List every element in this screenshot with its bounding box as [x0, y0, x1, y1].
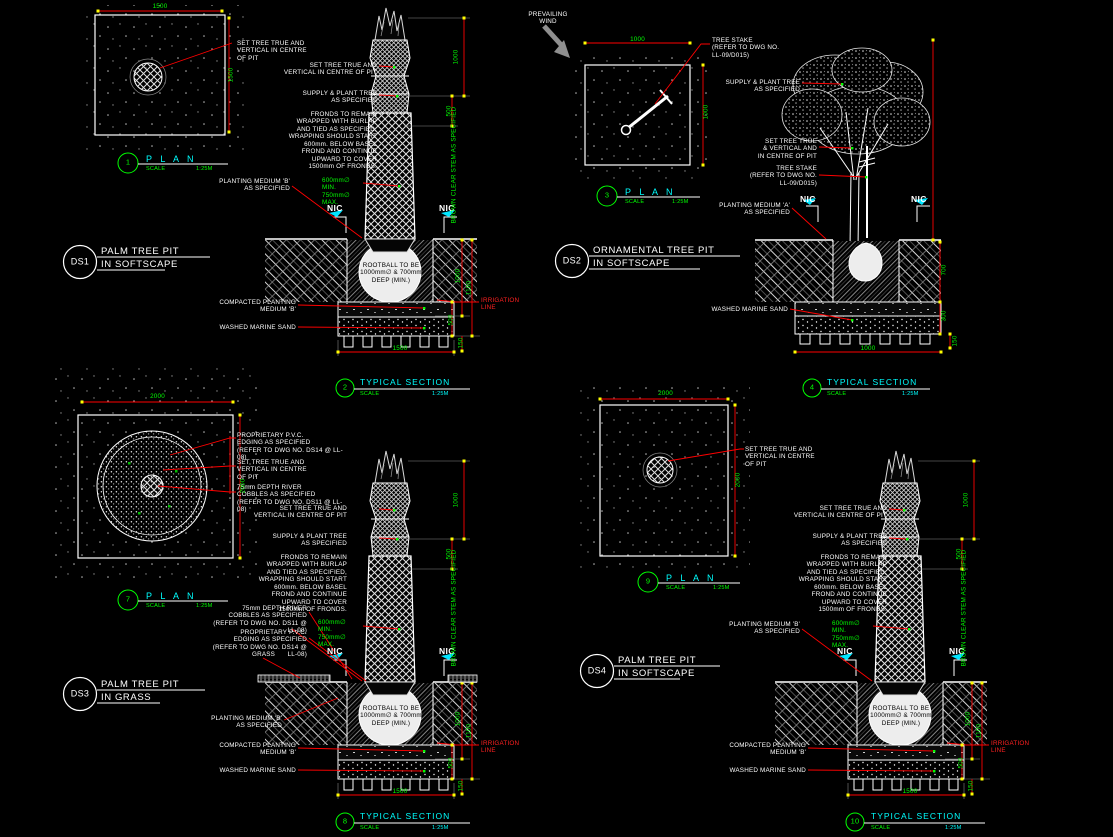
ds3-section-set-tree-note: SET TREE TRUE AND VERTICAL IN CENTRE OF … — [247, 505, 347, 520]
ds2-section-tree-stake-note: TREE STAKE (REFER TO DWG NO. LL-09/D015) — [717, 165, 817, 187]
ds4-supply-note: SUPPLY & PLANT TREE AS SPECIFIED — [787, 533, 887, 548]
ds1-plan-set-tree-note: SET TREE TRUE AND VERTICAL IN CENTRE OF … — [237, 40, 327, 62]
ds1-plan-scale-word: SCALE — [146, 166, 165, 173]
ds3-grass-note: GRASS — [252, 651, 275, 658]
ds4-section-heading: TYPICAL SECTION — [871, 811, 961, 821]
ds1-dim-500: 500 — [445, 105, 452, 116]
ds2-dim-depth: 700 — [940, 264, 947, 275]
ds2-plan-drawing — [544, 26, 710, 180]
ds3-dim-base: 500 — [447, 757, 454, 768]
ds3-washed-sand-note: WASHED MARINE SAND — [196, 767, 296, 774]
ds4-plan-scale-value: 1:25M — [713, 585, 730, 592]
ds3-section-scale-value: 1:25M — [432, 825, 449, 832]
ds4-title-line1: PALM TREE PIT — [618, 655, 696, 666]
ds4-stem-note: BROWN CLEAR STEM AS SPECIFIED — [960, 550, 967, 667]
ds2-prevailing-wind-note: PREVAILING WIND — [526, 11, 570, 26]
ds4-nic-left: NIC — [837, 646, 853, 656]
ds2-nic-right: NIC — [911, 194, 927, 204]
ds2-set-tree-note: SET TREE TRUE & VERTICAL AND IN CENTRE O… — [717, 138, 817, 160]
ds2-dim-base: 300 — [940, 310, 947, 321]
ds4-dim-base: 500 — [957, 757, 964, 768]
ds3-plan-scale-value: 1:25M — [196, 603, 213, 610]
ds1-dim-width: 1500 — [365, 345, 435, 352]
ds1-dim-1000: 1000 — [452, 50, 459, 65]
ds4-dim-500: 500 — [955, 548, 962, 559]
ds4-dim-pit: 1000 — [964, 712, 971, 727]
ds3-section-heading: TYPICAL SECTION — [360, 811, 450, 821]
drawing-linework — [0, 0, 1113, 837]
ds1-stem-note: BROWN CLEAR STEM AS SPECIFIED — [450, 107, 457, 224]
ds1-washed-sand-note: WASHED MARINE SAND — [196, 324, 296, 331]
ds3-dim-pit: 1000 — [454, 712, 461, 727]
ds1-plan-dim-height: 1500 — [227, 68, 234, 83]
ds3-planting-medium-note: PLANTING MEDIUM 'B' AS SPECIFIED — [182, 715, 282, 730]
ds4-section-number: 10 — [851, 818, 860, 827]
ds4-section-scale-value: 1:25M — [945, 825, 962, 832]
ds4-rootball-note: ROOTBALL TO BE 1000mm∅ & 700mm DEEP (MIN… — [869, 705, 933, 727]
ds1-supply-note: SUPPLY & PLANT TREE AS SPECIFIED — [277, 90, 377, 105]
ds4-plan-scale-word: SCALE — [666, 585, 685, 592]
ds4-section-set-tree-note: SET TREE TRUE AND VERTICAL IN CENTRE OF … — [787, 505, 887, 520]
ds3-plan-dim-height: 2000 — [239, 479, 246, 494]
ds3-rootball-note: ROOTBALL TO BE 1000mm∅ & 700mm DEEP (MIN… — [359, 705, 423, 727]
ds3-plan-heading: P L A N — [146, 591, 197, 602]
ds3-plan-scale-word: SCALE — [146, 603, 165, 610]
ds1-rootball-note: ROOTBALL TO BE 1000mm∅ & 700mm DEEP (MIN… — [359, 262, 423, 284]
ds4-detail-id: DS4 — [588, 666, 606, 677]
ds3-section-scale-word: SCALE — [360, 825, 379, 832]
ds1-section-set-tree-note: SET TREE TRUE AND VERTICAL IN CENTRE OF … — [277, 62, 377, 77]
ds3-plan-dim-width: 2000 — [120, 393, 195, 400]
ds2-plan-dim-height: 1000 — [702, 105, 709, 120]
ds3-plan-set-tree-note: SET TREE TRUE AND VERTICAL IN CENTRE OF … — [237, 459, 327, 481]
ds2-plan-scale-value: 1:25M — [672, 199, 689, 206]
ds1-title-line1: PALM TREE PIT — [101, 246, 179, 257]
ds2-section-heading: TYPICAL SECTION — [827, 377, 917, 387]
ds2-title-line2: IN SOFTSCAPE — [593, 258, 670, 269]
ds4-washed-sand-note: WASHED MARINE SAND — [706, 767, 806, 774]
ds1-irrigation-note: IRRIGATION LINE — [481, 297, 519, 312]
ds2-supply-note: SUPPLY & PLANT TREE AS SPECIFIED — [700, 79, 800, 94]
ds2-plan-heading: P L A N — [625, 187, 676, 198]
ds2-plan-scale-word: SCALE — [625, 199, 644, 206]
ds4-fronds-note: FRONDS TO REMAIN WRAPPED WITH BURLAP AND… — [787, 554, 887, 613]
ds3-pvc-edging-plan-note: PROPRIETARY P.V.C. EDGING AS SPECIFIED (… — [237, 432, 352, 462]
ds3-supply-note: SUPPLY & PLANT TREE AS SPECIFIED — [247, 533, 347, 548]
ds3-dim-500: 500 — [445, 548, 452, 559]
ds4-plan-heading: P L A N — [666, 573, 717, 584]
ds1-section-scale-value: 1:25M — [432, 391, 449, 398]
ds4-dim-sub: 150 — [967, 780, 974, 791]
ds1-plan-number: 1 — [126, 159, 130, 168]
ds1-nic-left: NIC — [327, 203, 343, 213]
ds1-fronds-note: FRONDS TO REMAIN WRAPPED WITH BURLAP AND… — [277, 111, 377, 170]
ds1-compacted-note: COMPACTED PLANTING MEDIUM 'B' — [196, 299, 296, 314]
ds2-plan-tree-stake-note: TREE STAKE (REFER TO DWG NO. LL-09/D015) — [712, 37, 797, 59]
ds4-planting-medium-note: PLANTING MEDIUM 'B' AS SPECIFIED — [700, 621, 800, 636]
ds1-plan-scale-value: 1:25M — [196, 166, 213, 173]
ds4-dim-1000: 1000 — [962, 493, 969, 508]
ds1-title-line2: IN SOFTSCAPE — [101, 259, 178, 270]
ds3-irrigation-note: IRRIGATION LINE — [481, 740, 519, 755]
cad-drawing-sheet: SET TREE TRUE AND VERTICAL IN CENTRE OF … — [0, 0, 1113, 837]
ds4-compacted-note: COMPACTED PLANTING MEDIUM 'B' — [706, 742, 806, 757]
ds4-section-scale-word: SCALE — [871, 825, 890, 832]
ds1-dim-pit: 1000 — [454, 269, 461, 284]
ds2-title-line1: ORNAMENTAL TREE PIT — [593, 245, 715, 256]
ds2-washed-sand-note: WASHED MARINE SAND — [688, 306, 788, 313]
ds4-plan-dim-width: 2000 — [628, 390, 703, 397]
ds3-compacted-note: COMPACTED PLANTING MEDIUM 'B' — [196, 742, 296, 757]
ds4-plan-drawing — [580, 385, 750, 570]
ds1-dim-base: 500 — [447, 314, 454, 325]
ds3-detail-id: DS3 — [71, 689, 89, 700]
ds4-plan-number: 9 — [646, 578, 650, 587]
ds3-dim-1000: 1000 — [452, 493, 459, 508]
ds2-section-number: 4 — [810, 384, 814, 393]
ds1-section-number: 2 — [343, 384, 347, 393]
ds3-stem-note: BROWN CLEAR STEM AS SPECIFIED — [450, 550, 457, 667]
ds2-plan-dim-width: 1000 — [600, 36, 675, 43]
ds3-dim-pit2: 1100 — [465, 724, 472, 738]
ds1-section-scale-word: SCALE — [360, 391, 379, 398]
ds2-plan-number: 3 — [605, 192, 609, 201]
ds1-detail-id: DS1 — [71, 257, 89, 268]
ds3-dim-width: 1500 — [365, 788, 435, 795]
prevailing-wind-arrow-icon — [544, 26, 570, 58]
ds3-title-line2: IN GRASS — [101, 692, 151, 703]
ds1-dim-pit2: 1100 — [465, 281, 472, 295]
ds2-dim-sub: 150 — [951, 335, 958, 346]
ds4-section-drawing — [775, 451, 990, 799]
ds2-section-scale-word: SCALE — [827, 391, 846, 398]
ds1-plan-dim-width: 1500 — [125, 3, 195, 10]
ds3-title-line1: PALM TREE PIT — [101, 679, 179, 690]
ds1-plan-drawing — [85, 5, 245, 150]
ds4-title-line2: IN SOFTSCAPE — [618, 668, 695, 679]
ds2-section-scale-value: 1:25M — [902, 391, 919, 398]
ds3-section-number: 8 — [343, 818, 347, 827]
ds2-detail-id: DS2 — [563, 256, 581, 267]
ds4-dim-width: 1500 — [875, 788, 945, 795]
ds2-planting-medium-note: PLANTING MEDIUM 'A' AS SPECIFIED — [690, 202, 790, 217]
ds1-plan-heading: P L A N — [146, 154, 197, 165]
ds4-plan-dim-height: 2000 — [734, 473, 741, 488]
ds1-planting-medium-note: PLANTING MEDIUM 'B' AS SPECIFIED — [190, 178, 290, 193]
ds4-irrigation-note: IRRIGATION LINE — [991, 740, 1029, 755]
ds3-rootball-diameter-note: 600mm∅ MIN. 750mm∅ MAX. — [318, 619, 360, 649]
ds3-plan-number: 7 — [126, 596, 130, 605]
ds4-plan-set-tree-note: SET TREE TRUE AND VERTICAL IN CENTRE OF … — [745, 446, 835, 468]
ds4-dim-pit2: 1100 — [975, 724, 982, 738]
ds2-dim-width: 1000 — [833, 345, 903, 352]
ds3-dim-sub: 150 — [457, 780, 464, 791]
ds1-dim-sub: 150 — [457, 337, 464, 348]
ds1-section-heading: TYPICAL SECTION — [360, 377, 450, 387]
ds2-nic-left: NIC — [800, 194, 816, 204]
